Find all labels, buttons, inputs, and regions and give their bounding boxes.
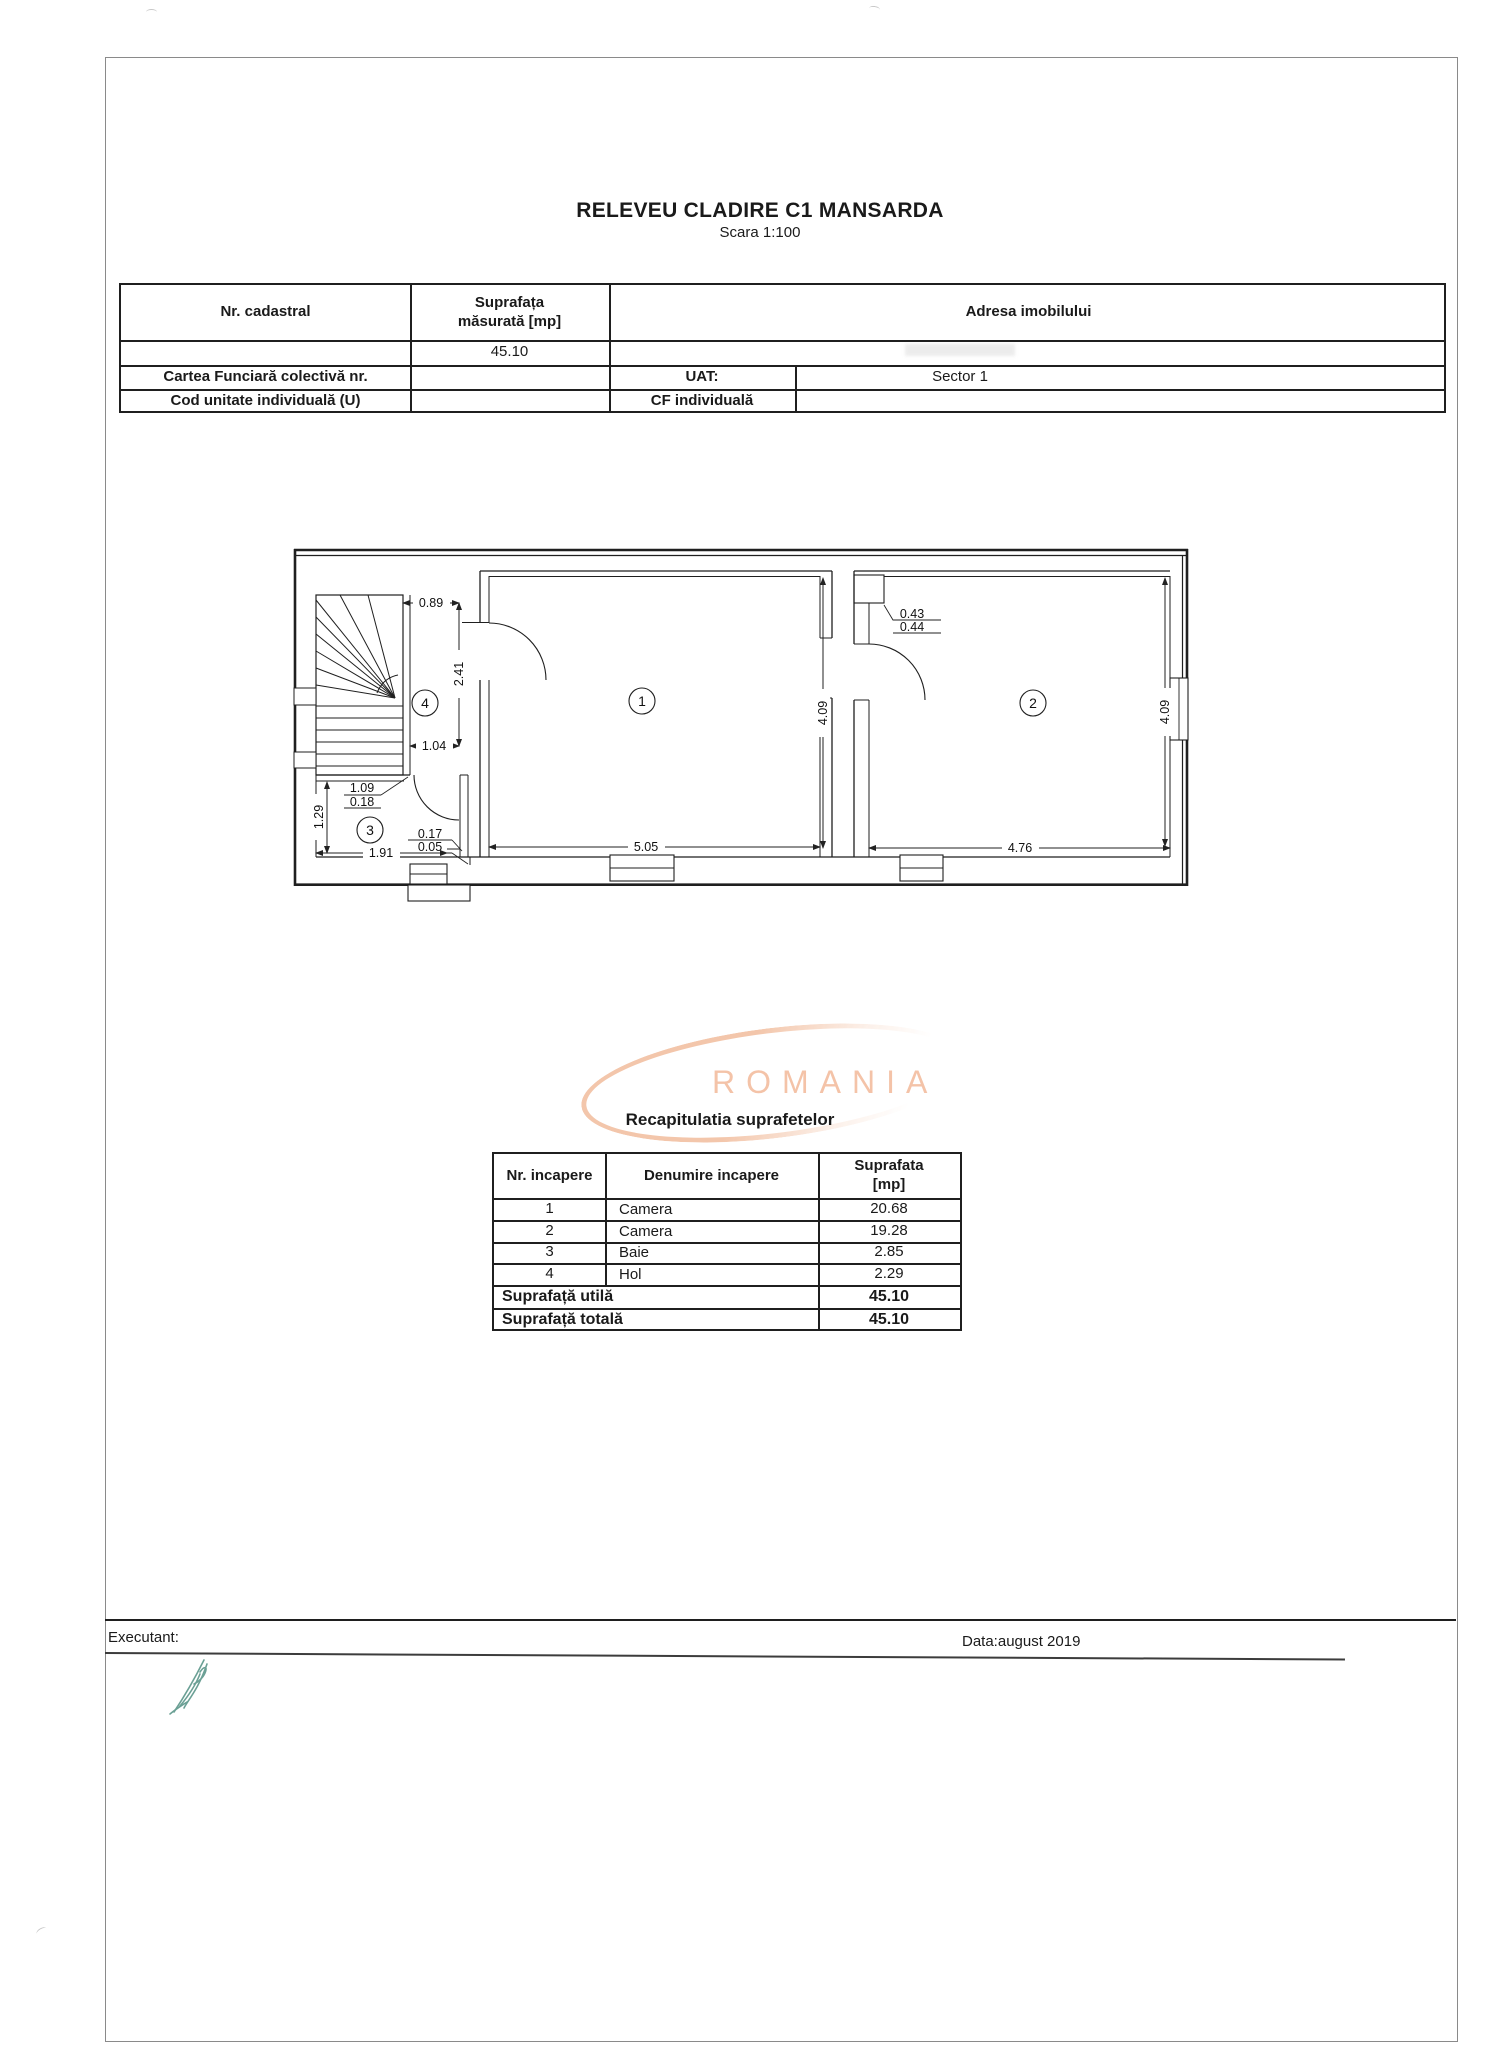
dimension-labels: 0.89 2.41 1.04 4.09 4.09 5.05 4.76 1.29 … [312, 596, 1172, 860]
recap-header-nr: Nr. incapere [494, 1154, 605, 1198]
dim-0.17: 0.17 [418, 827, 442, 841]
floor-plan-drawing: 0.89 2.41 1.04 4.09 4.09 5.05 4.76 1.29 … [270, 530, 1220, 920]
scan-artifact [146, 9, 157, 15]
suprafata-totala-value: 45.10 [818, 1308, 960, 1331]
dim-0.05: 0.05 [418, 840, 442, 854]
room-number-3: 3 [366, 822, 374, 838]
scanned-document-page: RELEVEU CLADIRE C1 MANSARDA Scara 1:100 … [0, 0, 1489, 2048]
cadastral-info-table: Nr. cadastral Suprafața măsurată [mp] Ad… [119, 283, 1446, 413]
footer-divider [105, 1619, 1456, 1621]
window-bathroom [410, 864, 447, 884]
leader-lines [344, 605, 941, 864]
cod-unitate-label: Cod unitate individuală (U) [121, 389, 410, 413]
recap-header-suprafata: Suprafata [mp] [818, 1154, 960, 1198]
hall-door-arc [489, 623, 546, 680]
scan-artifact [35, 1926, 48, 1937]
scan-artifact [869, 5, 881, 12]
row-area: 2.85 [818, 1242, 960, 1263]
window-room1 [610, 855, 674, 881]
dim-0.43: 0.43 [900, 607, 924, 621]
window-right [1170, 678, 1188, 740]
recap-header-denumire: Denumire incapere [605, 1154, 818, 1198]
executant-label: Executant: [108, 1629, 179, 1646]
suprafata-utila-value: 45.10 [818, 1285, 960, 1308]
redacted-address-smudge [905, 344, 1015, 356]
dim-1.04: 1.04 [422, 739, 446, 753]
room-number-4: 4 [421, 695, 429, 711]
window-room2 [900, 855, 943, 881]
date-label: Data:august 2019 [962, 1633, 1080, 1650]
header-suprafata: Suprafața măsurată [mp] [410, 285, 609, 340]
row-nr: 3 [494, 1242, 605, 1263]
row-name: Camera [619, 1201, 672, 1220]
row-name: Baie [619, 1244, 649, 1263]
recap-table: Nr. incapere Denumire incapere Suprafata… [492, 1152, 962, 1331]
row-area: 20.68 [818, 1198, 960, 1220]
watermark-text: ROMANIA [712, 1064, 938, 1101]
header-adresa: Adresa imobilului [609, 285, 1448, 340]
dim-0.18: 0.18 [350, 795, 374, 809]
row-area: 2.29 [818, 1263, 960, 1285]
dim-0.89: 0.89 [419, 596, 443, 610]
wall-protrusion [408, 885, 470, 901]
drawing-scale: Scara 1:100 [300, 224, 1220, 241]
suprafata-value: 45.10 [410, 340, 609, 365]
page-title: RELEVEU CLADIRE C1 MANSARDA [300, 199, 1220, 223]
left-wall-niche [294, 752, 316, 768]
dim-1.09: 1.09 [350, 781, 374, 795]
recap-title: Recapitulatia suprafetelor [500, 1110, 960, 1130]
row-nr: 2 [494, 1220, 605, 1242]
suprafata-totala-label: Suprafață totală [502, 1311, 623, 1329]
door-pier [854, 575, 884, 603]
suprafata-utila-label: Suprafață utilă [502, 1288, 613, 1306]
room-number-2: 2 [1029, 695, 1037, 711]
header-nr-cadastral: Nr. cadastral [121, 285, 410, 340]
bathroom-door-arc [414, 775, 459, 820]
cartea-funciara-label: Cartea Funciară colectivă nr. [121, 365, 410, 389]
uat-value: Sector 1 [795, 365, 1125, 389]
room-number-1: 1 [638, 693, 646, 709]
dim-4.76: 4.76 [1008, 841, 1032, 855]
row-nr: 1 [494, 1198, 605, 1220]
room-door-arc [869, 644, 925, 700]
title-block: RELEVEU CLADIRE C1 MANSARDA Scara 1:100 [300, 199, 1220, 241]
dim-4.09-right: 4.09 [1158, 700, 1172, 724]
signature-scribble [160, 1650, 230, 1720]
dim-0.44: 0.44 [900, 620, 924, 634]
dim-1.29: 1.29 [312, 805, 326, 829]
dim-text-backings [313, 596, 1172, 860]
dim-1.91: 1.91 [369, 846, 393, 860]
dim-4.09-left: 4.09 [816, 701, 830, 725]
dimension-lines [316, 578, 1170, 853]
uat-label: UAT: [609, 365, 795, 389]
windows [294, 678, 1188, 901]
left-wall-niche [294, 688, 316, 705]
row-area: 19.28 [818, 1220, 960, 1242]
row-nr: 4 [494, 1263, 605, 1285]
dim-5.05: 5.05 [634, 840, 658, 854]
staircase [316, 595, 410, 775]
row-name: Camera [619, 1223, 672, 1242]
dim-2.41: 2.41 [452, 662, 466, 686]
row-name: Hol [619, 1266, 642, 1285]
cf-individuala-label: CF individuală [609, 389, 795, 413]
